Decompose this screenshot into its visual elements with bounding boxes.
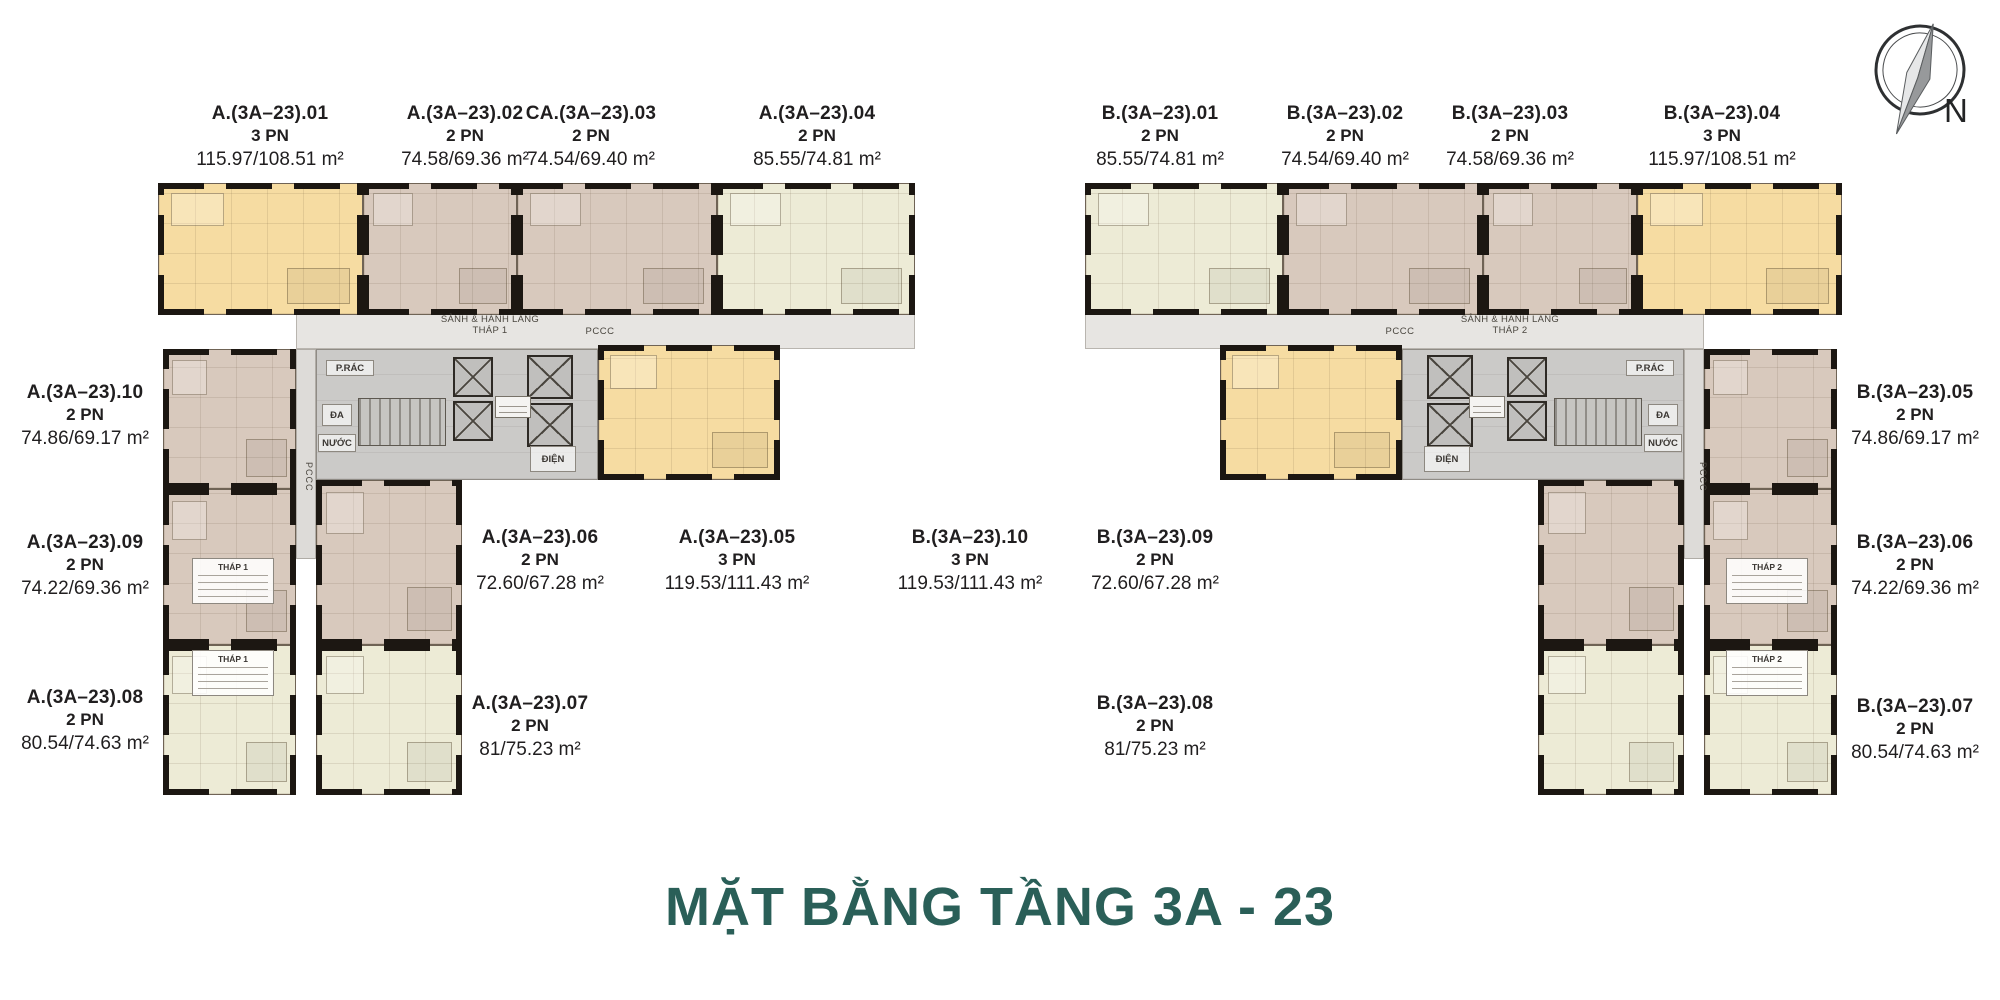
lobby-label: SẢNH & HÀNH LANGTHÁP 1 [428, 314, 552, 340]
unit-bedrooms: 2 PN [425, 715, 635, 737]
unit-id: A.(3A–23).07 [425, 692, 635, 715]
unit-plan-a-05 [598, 345, 780, 480]
unit-id: B.(3A–23).08 [1050, 692, 1260, 715]
tower-legend-box: THÁP 1 [192, 650, 274, 696]
wall-segment [163, 489, 296, 495]
nuoc-label: NƯỚC [1644, 434, 1682, 452]
wall-segment [717, 183, 915, 189]
unit-bedrooms: 2 PN [1055, 125, 1265, 147]
wall-segment [363, 183, 517, 189]
unit-id: A.(3A–23).09 [0, 531, 170, 554]
unit-id: B.(3A–23).07 [1830, 695, 2000, 718]
wall-segment [909, 183, 915, 315]
unit-id: A.(3A–23).06 [435, 526, 645, 549]
unit-area: 115.97/108.51 m² [1617, 147, 1827, 173]
unit-label-b-07: B.(3A–23).072 PN80.54/74.63 m² [1830, 695, 2000, 766]
unit-area: 85.55/74.81 m² [712, 147, 922, 173]
unit-plan-b-01 [1085, 183, 1283, 315]
unit-plan-b-03 [1483, 183, 1637, 315]
unit-label-a-07: A.(3A–23).072 PN81/75.23 m² [425, 692, 635, 763]
unit-area: 74.22/69.36 m² [1830, 576, 2000, 602]
wall-segment [1483, 183, 1637, 189]
unit-label-a-08: A.(3A–23).082 PN80.54/74.63 m² [0, 686, 170, 757]
unit-label-b-08: B.(3A–23).082 PN81/75.23 m² [1050, 692, 1260, 763]
wall-segment [1678, 480, 1684, 645]
lobby-label-line1: SẢNH & HÀNH LANG [1448, 314, 1572, 325]
unit-area: 119.53/111.43 m² [865, 571, 1075, 597]
wall-segment [316, 480, 462, 486]
unit-area: 115.97/108.51 m² [165, 147, 375, 173]
wall-segment [316, 480, 322, 645]
wall-segment [1085, 183, 1283, 189]
wall-segment [316, 789, 462, 795]
floor-plan-title: MẶT BẰNG TẦNG 3A - 23 [0, 876, 2000, 938]
da-label: ĐA [1648, 404, 1678, 426]
elevator-icon [527, 403, 573, 447]
unit-plan-b-08 [1538, 645, 1684, 795]
lobby-label-line2: THÁP 2 [1448, 325, 1572, 336]
pccc-label: PCCC [578, 324, 622, 339]
unit-bedrooms: 3 PN [1617, 125, 1827, 147]
unit-bedrooms: 2 PN [1830, 718, 2000, 740]
elevator-icon [1507, 401, 1547, 441]
elevator-icon [1427, 403, 1473, 447]
unit-bedrooms: 2 PN [1050, 715, 1260, 737]
da-label: ĐA [322, 404, 352, 426]
unit-bedrooms: 2 PN [486, 125, 696, 147]
wall-segment [1538, 645, 1684, 651]
unit-plan-a-02 [363, 183, 517, 315]
unit-area: 85.55/74.81 m² [1055, 147, 1265, 173]
unit-area: 81/75.23 m² [1050, 737, 1260, 763]
unit-label-a-09: A.(3A–23).092 PN74.22/69.36 m² [0, 531, 170, 602]
elevator-icon [453, 357, 493, 397]
unit-label-b-04: B.(3A–23).043 PN115.97/108.51 m² [1617, 102, 1827, 173]
wall-segment [598, 474, 780, 480]
stair-icon [1554, 398, 1642, 446]
wall-segment [158, 309, 363, 315]
unit-plan-a-01 [158, 183, 363, 315]
unit-plan-a-10 [163, 349, 296, 489]
unit-label-b-06: B.(3A–23).062 PN74.22/69.36 m² [1830, 531, 2000, 602]
unit-label-a-10: A.(3A–23).102 PN74.86/69.17 m² [0, 381, 170, 452]
wall-segment [1085, 309, 1283, 315]
unit-bedrooms: 2 PN [1830, 554, 2000, 576]
unit-plan-a-04 [717, 183, 915, 315]
unit-id: A.(3A–23).08 [0, 686, 170, 709]
unit-bedrooms: 2 PN [1830, 404, 2000, 426]
wall-segment [1538, 480, 1684, 486]
tower-legend-box: THÁP 1 [192, 558, 274, 604]
unit-plan-b-10 [1220, 345, 1402, 480]
unit-bedrooms: 2 PN [435, 549, 645, 571]
tower-legend-box: THÁP 2 [1726, 650, 1808, 696]
wall-segment [163, 789, 296, 795]
unit-label-a-04: A.(3A–23).042 PN85.55/74.81 m² [712, 102, 922, 173]
wall-segment [517, 183, 523, 315]
side-corridor [296, 349, 316, 559]
prac-label: P.RÁC [326, 360, 374, 376]
wall-segment [1678, 645, 1684, 795]
unit-id: A.(3A–23).04 [712, 102, 922, 125]
dien-label: ĐIỆN [1424, 446, 1470, 472]
unit-id: A.(3A–23).05 [632, 526, 842, 549]
wall-segment [1704, 349, 1837, 355]
wall-segment [163, 349, 296, 355]
wall-segment [163, 639, 296, 645]
unit-area: 80.54/74.63 m² [1830, 740, 2000, 766]
prac-label: P.RÁC [1626, 360, 1674, 376]
unit-bedrooms: 2 PN [1050, 549, 1260, 571]
elevator-icon [1427, 355, 1473, 399]
elevator-icon [453, 401, 493, 441]
unit-label-a-06: A.(3A–23).062 PN72.60/67.28 m² [435, 526, 645, 597]
wall-segment [316, 645, 462, 651]
wall-segment [1704, 645, 1710, 795]
wall-segment [158, 183, 363, 189]
wall-segment [598, 345, 604, 480]
unit-id: B.(3A–23).03 [1405, 102, 1615, 125]
unit-bedrooms: 2 PN [0, 404, 170, 426]
side-corridor [1684, 349, 1704, 559]
unit-label-b-09: B.(3A–23).092 PN72.60/67.28 m² [1050, 526, 1260, 597]
wall-segment [598, 345, 780, 351]
unit-label-a-05: A.(3A–23).053 PN119.53/111.43 m² [632, 526, 842, 597]
unit-bedrooms: 3 PN [865, 549, 1075, 571]
wall-segment [1396, 345, 1402, 480]
wall-segment [1836, 183, 1842, 315]
elevator-icon [1507, 357, 1547, 397]
unit-area: 72.60/67.28 m² [435, 571, 645, 597]
unit-label-b-05: B.(3A–23).052 PN74.86/69.17 m² [1830, 381, 2000, 452]
pccc-side-label: PCCC [292, 462, 314, 524]
wall-segment [1220, 345, 1402, 351]
wall-segment [1283, 183, 1289, 315]
wall-segment [1637, 183, 1842, 189]
unit-label-b-01: B.(3A–23).012 PN85.55/74.81 m² [1055, 102, 1265, 173]
wall-segment [1538, 639, 1684, 645]
unit-area: 74.86/69.17 m² [1830, 426, 2000, 452]
unit-bedrooms: 3 PN [165, 125, 375, 147]
unit-id: B.(3A–23).10 [865, 526, 1075, 549]
unit-plan-a-03 [517, 183, 717, 315]
wall-segment [1220, 474, 1402, 480]
unit-bedrooms: 2 PN [0, 709, 170, 731]
floor-plan-page: P.RÁCĐANƯỚCĐIỆNSẢNH & HÀNH LANGTHÁP 1PCC… [0, 0, 2000, 1000]
wall-segment [1704, 789, 1837, 795]
wall-segment [1637, 309, 1842, 315]
wall-segment [1085, 183, 1091, 315]
unit-id: A.(3A–23).10 [0, 381, 170, 404]
wall-segment [1637, 183, 1643, 315]
unit-area: 74.58/69.36 m² [1405, 147, 1615, 173]
unit-area: 80.54/74.63 m² [0, 731, 170, 757]
unit-id: A.(3A–23).01 [165, 102, 375, 125]
unit-plan-b-04 [1637, 183, 1842, 315]
wall-segment [158, 183, 164, 315]
wall-segment [1283, 183, 1483, 189]
wall-segment [774, 345, 780, 480]
level-marker [1469, 396, 1505, 418]
wall-segment [717, 309, 915, 315]
wall-segment [517, 183, 717, 189]
unit-area: 74.22/69.36 m² [0, 576, 170, 602]
unit-id: B.(3A–23).05 [1830, 381, 2000, 404]
dien-label: ĐIỆN [530, 446, 576, 472]
wall-segment [1538, 480, 1544, 645]
wall-segment [290, 645, 296, 795]
lobby-label-line2: THÁP 1 [428, 325, 552, 336]
unit-plan-b-09 [1538, 480, 1684, 645]
unit-plan-b-02 [1283, 183, 1483, 315]
unit-area: 74.54/69.40 m² [486, 147, 696, 173]
unit-area: 72.60/67.28 m² [1050, 571, 1260, 597]
lobby-label-line1: SẢNH & HÀNH LANG [428, 314, 552, 325]
unit-id: B.(3A–23).01 [1055, 102, 1265, 125]
unit-id: B.(3A–23).06 [1830, 531, 2000, 554]
wall-segment [316, 645, 322, 795]
unit-bedrooms: 2 PN [1405, 125, 1615, 147]
wall-segment [163, 483, 296, 489]
unit-label-a-01: A.(3A–23).013 PN115.97/108.51 m² [165, 102, 375, 173]
unit-bedrooms: 2 PN [0, 554, 170, 576]
stair-icon [358, 398, 446, 446]
wall-segment [717, 183, 723, 315]
unit-plan-b-05 [1704, 349, 1837, 489]
unit-area: 74.86/69.17 m² [0, 426, 170, 452]
nuoc-label: NƯỚC [318, 434, 356, 452]
wall-segment [1704, 489, 1837, 495]
wall-segment [1483, 183, 1489, 315]
level-marker [495, 396, 531, 418]
compass-north-label: N [1944, 92, 1968, 130]
unit-area: 81/75.23 m² [425, 737, 635, 763]
tower-legend-box: THÁP 2 [1726, 558, 1808, 604]
wall-segment [1538, 645, 1544, 795]
elevator-icon [527, 355, 573, 399]
unit-id: CA.(3A–23).03 [486, 102, 696, 125]
unit-bedrooms: 3 PN [632, 549, 842, 571]
unit-id: B.(3A–23).09 [1050, 526, 1260, 549]
wall-segment [1538, 789, 1684, 795]
wall-segment [1220, 345, 1226, 480]
unit-id: B.(3A–23).04 [1617, 102, 1827, 125]
unit-label-b-03: B.(3A–23).032 PN74.58/69.36 m² [1405, 102, 1615, 173]
lobby-label: SẢNH & HÀNH LANGTHÁP 2 [1448, 314, 1572, 340]
unit-area: 119.53/111.43 m² [632, 571, 842, 597]
unit-bedrooms: 2 PN [712, 125, 922, 147]
pccc-label: PCCC [1378, 324, 1422, 339]
wall-segment [363, 183, 369, 315]
unit-label-b-10: B.(3A–23).103 PN119.53/111.43 m² [865, 526, 1075, 597]
pccc-side-label: PCCC [1686, 462, 1708, 524]
unit-label-a-03: CA.(3A–23).032 PN74.54/69.40 m² [486, 102, 696, 173]
